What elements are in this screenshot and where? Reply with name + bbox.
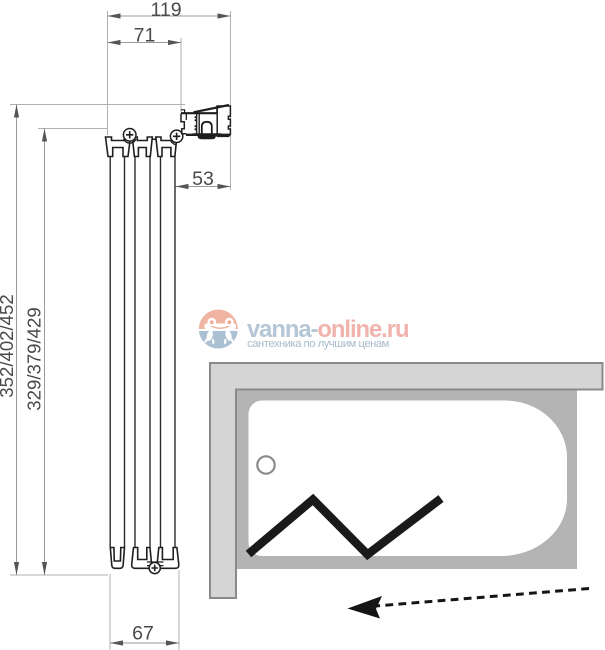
svg-text:329/379/429: 329/379/429 bbox=[24, 307, 45, 410]
svg-text:53: 53 bbox=[192, 168, 214, 190]
svg-text:119: 119 bbox=[150, 0, 181, 21]
svg-text:сантехника по лучшим ценам: сантехника по лучшим ценам bbox=[247, 338, 389, 350]
svg-text:67: 67 bbox=[132, 622, 154, 644]
svg-text:352/402/452: 352/402/452 bbox=[0, 294, 17, 397]
svg-text:71: 71 bbox=[134, 25, 156, 47]
